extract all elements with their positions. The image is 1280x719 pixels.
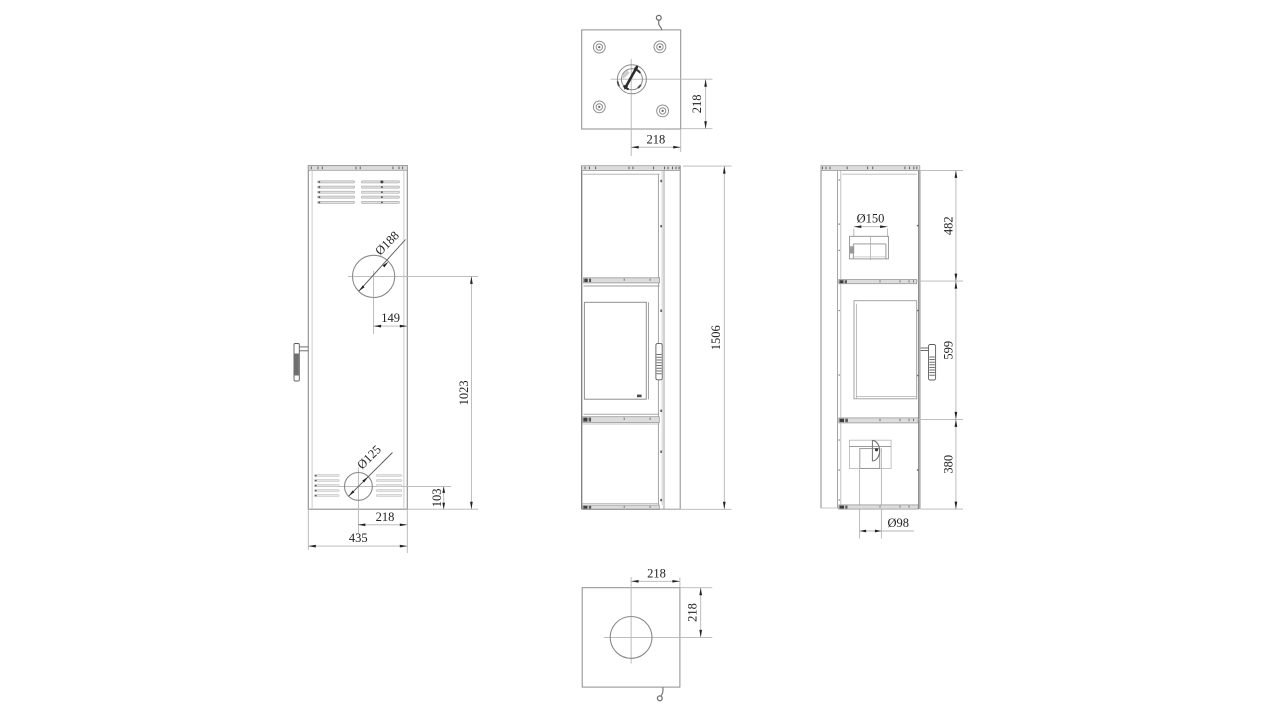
svg-text:103: 103 <box>430 488 444 507</box>
svg-text:218: 218 <box>690 94 704 113</box>
svg-text:218: 218 <box>647 132 666 146</box>
svg-text:599: 599 <box>941 341 955 360</box>
svg-text:1023: 1023 <box>457 380 471 405</box>
svg-text:1506: 1506 <box>709 325 723 350</box>
svg-text:Ø98: Ø98 <box>888 516 910 530</box>
svg-text:482: 482 <box>941 216 955 235</box>
svg-text:380: 380 <box>941 455 955 474</box>
svg-text:218: 218 <box>376 510 395 524</box>
svg-text:435: 435 <box>349 531 368 545</box>
svg-text:218: 218 <box>685 603 699 622</box>
svg-text:149: 149 <box>381 311 400 325</box>
svg-text:218: 218 <box>647 567 666 581</box>
svg-text:Ø150: Ø150 <box>857 212 885 226</box>
